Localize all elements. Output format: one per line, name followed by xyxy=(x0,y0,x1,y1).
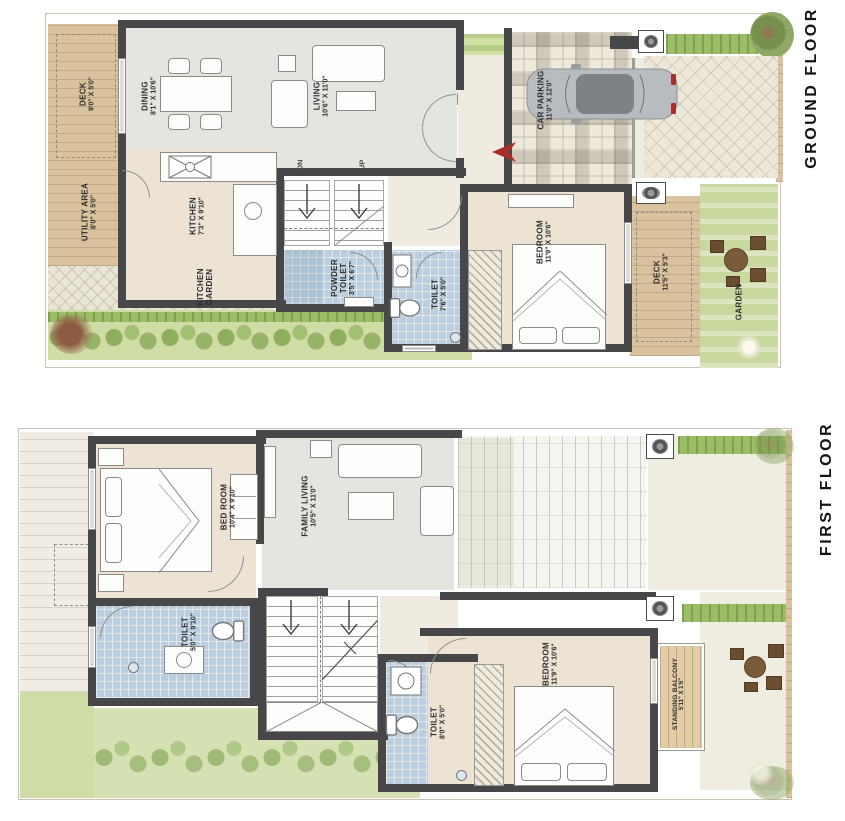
tree xyxy=(754,428,794,464)
blanket-fold xyxy=(515,703,615,759)
floor-drain-icon xyxy=(128,662,139,673)
coffee-table xyxy=(348,492,394,520)
wall xyxy=(88,598,258,606)
terrace-chair xyxy=(766,676,782,690)
first-floor-title: FIRST FLOOR xyxy=(818,422,836,556)
room-dims: 8'0" X 5'0" xyxy=(440,705,448,739)
terrace-chair xyxy=(744,682,758,692)
wall xyxy=(420,628,658,636)
pillow xyxy=(567,763,607,781)
ac-fan-icon xyxy=(652,439,668,453)
stair-arrow-icon xyxy=(280,600,302,646)
room-dims: 10'4" X 9'10" xyxy=(230,486,238,528)
window xyxy=(88,626,96,668)
wall xyxy=(88,436,266,444)
wall xyxy=(258,588,328,596)
room-dims: 10'5" X 11'0" xyxy=(311,485,319,527)
tv-unit xyxy=(264,446,276,518)
side-table xyxy=(98,574,124,592)
stair-cut-line xyxy=(322,620,378,680)
pergola-tint xyxy=(458,438,514,586)
terrace-chair xyxy=(730,648,744,660)
wc-icon xyxy=(211,619,245,643)
ac-unit xyxy=(646,434,674,459)
terrace-table xyxy=(744,656,766,678)
garden-left-below xyxy=(20,692,94,798)
wall xyxy=(258,588,266,740)
wall xyxy=(250,598,258,706)
bed xyxy=(100,468,212,572)
room-label-bedroom1: BED ROOM 10'4" X 9'10" xyxy=(221,484,238,530)
stair-dashed-line xyxy=(320,596,321,702)
ac-fan-icon xyxy=(652,601,668,615)
blanket-fold xyxy=(159,469,205,573)
pillow xyxy=(521,763,561,781)
compound-wall xyxy=(786,430,792,798)
room-name: FAMILY LIVING xyxy=(302,475,311,536)
room-label-standing-balcony: STANDING BALCONY 5'11" X 1'6" xyxy=(672,658,686,730)
wall xyxy=(440,592,656,600)
bed xyxy=(514,686,614,786)
room-label-toilet1: TOILET 5'0" X 9'10" xyxy=(182,613,199,651)
room-name: BEDROOM xyxy=(543,642,552,686)
wc-icon xyxy=(385,713,419,737)
stair-landing-lines xyxy=(266,702,378,732)
wall xyxy=(88,698,260,706)
room-label-bedroom2: BEDROOM 11'9" X 10'6" xyxy=(543,642,560,686)
wall xyxy=(650,628,658,792)
hedge-mid xyxy=(682,604,786,622)
window xyxy=(88,468,96,530)
terrace-chair xyxy=(768,644,784,658)
room-name: STANDING BALCONY xyxy=(672,658,679,730)
room-dims: 5'0" X 9'10" xyxy=(191,613,199,651)
sofa xyxy=(338,444,422,478)
room-name: BED ROOM xyxy=(221,484,230,530)
wall-unit xyxy=(310,440,332,458)
room-label-toilet2: TOILET 8'0" X 5'0" xyxy=(431,705,448,739)
washbasin-icon xyxy=(390,666,422,696)
room-name: TOILET xyxy=(431,707,440,737)
wall xyxy=(256,430,462,438)
wall xyxy=(258,732,388,740)
floor-drain-icon xyxy=(456,770,467,781)
side-table xyxy=(98,448,124,466)
pillow xyxy=(105,523,122,563)
room-dims: 11'9" X 10'6" xyxy=(552,643,560,685)
washbasin-icon xyxy=(176,652,192,668)
pillow xyxy=(105,477,122,517)
ac-unit xyxy=(646,596,674,621)
first-floor-plan: BED ROOM 10'4" X 9'10" FAMILY LIVING 10'… xyxy=(0,0,845,821)
room-name: TOILET xyxy=(182,617,191,647)
flower xyxy=(748,760,774,786)
armchair xyxy=(420,486,454,536)
room-label-family-living: FAMILY LIVING 10'5" X 11'0" xyxy=(302,475,319,536)
room-dims: 5'11" X 1'6" xyxy=(679,678,686,710)
wall xyxy=(378,784,478,792)
wardrobe xyxy=(474,664,504,786)
balcony-door xyxy=(650,658,658,704)
